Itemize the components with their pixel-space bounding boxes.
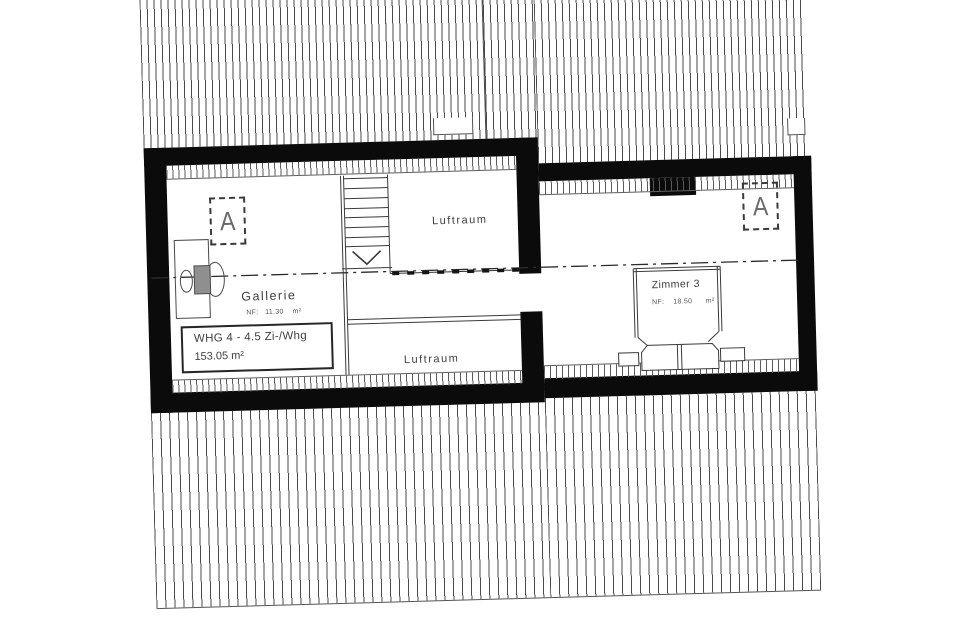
bed — [641, 343, 719, 370]
desk-and-chair — [174, 239, 225, 318]
bed-group — [618, 343, 745, 372]
apartment-name: WHG 4 - 4.5 Zi-/Whg — [194, 330, 307, 345]
chair — [194, 266, 211, 294]
nightstand-left — [619, 353, 639, 367]
linework-layer — [0, 0, 960, 640]
section-cut-line — [151, 260, 799, 278]
apartment-area: 153.05 m² — [194, 350, 244, 363]
floor-plan-drawing: A A Luftraum Luftraum Gallerie NF: 11.30… — [0, 0, 960, 640]
room-label-luftraum-upper: Luftraum — [415, 213, 505, 228]
floor-plan-page: A A Luftraum Luftraum Gallerie NF: 11.30… — [0, 0, 960, 640]
room-label-zimmer3: Zimmer 3 — [651, 278, 700, 291]
section-marker-a-left: A — [209, 197, 246, 246]
section-marker-letter: A — [220, 205, 236, 236]
room-label-gallerie: Gallerie — [224, 288, 314, 305]
room-label-luftraum-lower: Luftraum — [386, 352, 476, 367]
apartment-info-box: WHG 4 - 4.5 Zi-/Whg 153.05 m² — [181, 322, 334, 373]
staircase — [339, 174, 392, 274]
section-marker-letter: A — [752, 190, 768, 221]
section-marker-a-right: A — [742, 182, 779, 231]
stair-direction-arrow-icon — [353, 251, 381, 265]
nightstand-right — [720, 348, 744, 362]
gallery-balustrade — [390, 270, 519, 274]
